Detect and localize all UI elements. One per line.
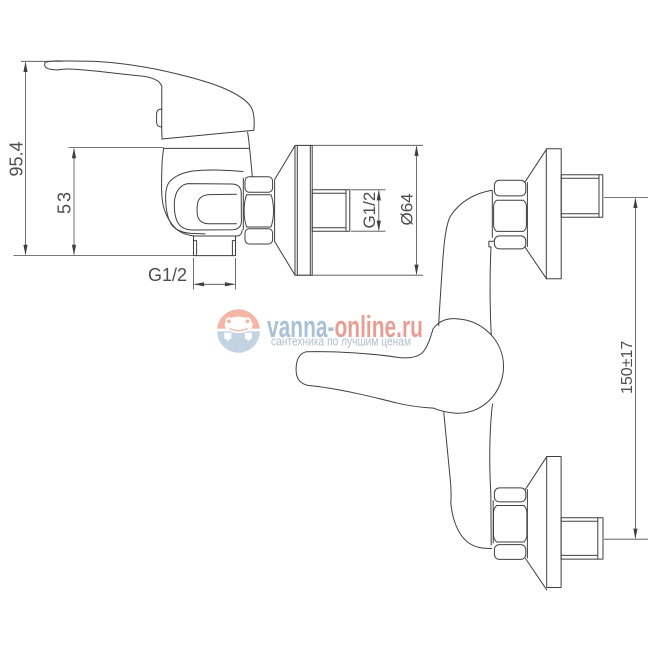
svg-text:G1/2: G1/2 [360, 192, 379, 229]
svg-text:Ø64: Ø64 [398, 193, 417, 225]
svg-text:150±17: 150±17 [619, 341, 636, 394]
svg-text:G1/2: G1/2 [148, 265, 187, 285]
svg-text:95.4: 95.4 [7, 141, 27, 176]
svg-text:сантехника по лучшим ценам: сантехника по лучшим ценам [271, 336, 411, 349]
svg-text:53: 53 [55, 190, 75, 214]
